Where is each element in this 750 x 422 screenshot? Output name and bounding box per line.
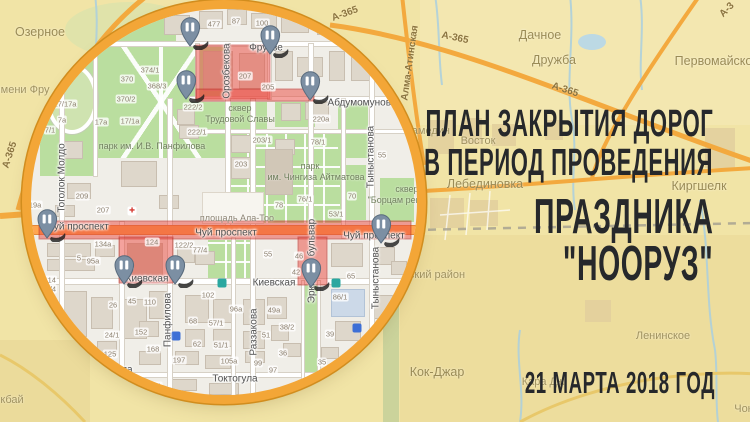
pin-shadow: [314, 282, 329, 291]
building: [392, 262, 406, 274]
house-number: 105а: [220, 357, 239, 366]
area-name-label: площадь Ала-Тоо: [200, 213, 274, 223]
area-name-label: парк им. И.В. Панфилова: [99, 141, 205, 151]
street-name-label: Раззакова: [249, 308, 260, 355]
house-number: 17/17а: [53, 100, 78, 109]
building: [178, 110, 194, 124]
house-number: 125/7: [69, 345, 90, 354]
house-number: 53/1: [328, 210, 345, 219]
closure-location-pin: [34, 208, 68, 247]
area-name-label: парк: [301, 161, 320, 171]
house-number: 370: [120, 75, 135, 84]
house-number: 125: [103, 350, 118, 359]
street-name-label: Токтогула: [212, 374, 257, 385]
street: [94, 44, 97, 176]
district-label: Лебединовка: [447, 177, 523, 191]
area-name-label: сквер: [228, 103, 251, 113]
house-number: 220а: [312, 115, 331, 124]
house-number: 168: [146, 345, 161, 354]
pin-shadow: [313, 95, 328, 104]
house-number: 7а: [57, 116, 67, 125]
poi-icon: [332, 279, 341, 288]
closure-location-pin: [162, 254, 196, 293]
house-number: 134а: [94, 240, 113, 249]
house-number: 152: [134, 328, 149, 337]
district-label: Чон: [734, 403, 750, 415]
house-number: 65: [346, 272, 356, 281]
building: [232, 136, 252, 152]
street: [232, 238, 235, 395]
house-number: 5: [76, 254, 82, 263]
road-closure-zone: [197, 90, 313, 100]
house-number: 24/1: [104, 331, 121, 340]
house-number: 95а: [86, 257, 101, 266]
house-number: 197: [172, 356, 187, 365]
closure-location-pin: [257, 24, 291, 63]
house-number: 55: [263, 250, 273, 259]
house-number: 222/1: [187, 128, 208, 137]
park-area: [208, 240, 252, 280]
district-label: Дачное: [519, 28, 561, 42]
closure-location-pin: [297, 70, 331, 109]
house-number: 49а: [267, 306, 282, 315]
house-number: 51: [261, 331, 271, 340]
district-label: Первомайское: [675, 54, 750, 68]
house-number: 96а: [229, 305, 244, 314]
closure-location-pin: [177, 16, 211, 55]
house-number: 38/2: [279, 323, 296, 332]
poi-icon: [353, 324, 362, 333]
district-label: Дружба: [532, 53, 576, 67]
house-number: 368/3: [147, 82, 168, 91]
street-name-label: Токтогула: [87, 365, 132, 376]
house-number: 57/1: [208, 319, 225, 328]
closure-location-pin: [111, 254, 145, 293]
district-label: кбай: [0, 394, 23, 406]
event-date: 21 МАРТА 2018 ГОД: [525, 367, 715, 398]
building: [122, 162, 156, 186]
house-number: 62: [192, 340, 202, 349]
district-label: Восток: [461, 135, 496, 147]
house-number: 55: [377, 151, 387, 160]
building: [170, 380, 196, 390]
house-number: 51/1: [213, 341, 230, 350]
pin-shadow: [50, 233, 65, 242]
building: [332, 244, 362, 266]
house-number: 102: [201, 291, 216, 300]
pin-shadow: [178, 279, 193, 288]
house-number: 114: [43, 276, 57, 285]
poi-icon: ✚: [128, 207, 137, 216]
house-number: 86/1: [332, 293, 349, 302]
house-number: 112/4: [37, 285, 57, 294]
house-number: 68: [188, 317, 198, 326]
house-number: 97: [268, 366, 278, 375]
city-map: ✚ФрунзеОрозбековаАбдумомуноваТоголок Мол…: [31, 9, 417, 395]
house-number: 26: [108, 301, 118, 310]
house-number: 76/1: [297, 195, 314, 204]
pin-shadow: [273, 49, 288, 58]
pin-shadow: [189, 94, 204, 103]
house-number: 45: [127, 297, 137, 306]
house-number: 99: [253, 359, 263, 368]
building: [392, 300, 404, 316]
building: [390, 80, 406, 92]
pin-shadow: [193, 41, 208, 50]
street-name-label: Тыныстанова: [366, 126, 377, 188]
street-name-label: Панфилова: [163, 293, 174, 347]
area-name-label: "Борцам рев: [368, 195, 417, 205]
street: [302, 281, 304, 395]
park-area: [96, 9, 176, 44]
house-number: 78/1: [310, 138, 327, 147]
closure-location-pin: [368, 213, 402, 252]
closure-location-pin: [173, 69, 207, 108]
house-number: 205: [261, 83, 276, 92]
area-name-label: Трудовой Славы: [205, 114, 275, 124]
district-label: Кок-Джар: [410, 365, 465, 379]
district-label: Киргшелк: [671, 179, 726, 193]
house-number: 164/1: [142, 382, 163, 391]
street: [318, 281, 320, 395]
street-name-label: Орозбекова: [222, 43, 233, 98]
house-number: 39: [325, 330, 335, 339]
house-number: 7/1: [44, 126, 56, 135]
district-label: ский район: [409, 269, 465, 281]
road-closure-poster: Озерноеимени ФруДачноеДружбаПервомайское…: [0, 0, 750, 422]
building: [318, 10, 338, 34]
house-number: 207: [238, 72, 253, 81]
building: [384, 52, 400, 70]
house-number: 36: [278, 349, 288, 358]
closure-location-pin: [298, 257, 332, 296]
house-number: 209: [75, 192, 90, 201]
street: [370, 20, 374, 395]
house-number: 203/1: [252, 136, 273, 145]
house-number: 124: [145, 238, 160, 247]
area-name-label: им. Чингиза Айтматова: [267, 172, 364, 182]
pin-shadow: [384, 238, 399, 247]
house-number: 17/1а: [120, 117, 141, 126]
street-name-label: Абдумомунова: [328, 98, 397, 109]
building: [330, 52, 344, 80]
building: [386, 26, 404, 40]
house-number: 78: [274, 201, 284, 210]
pin-shadow: [127, 279, 142, 288]
house-number: 17а: [94, 118, 109, 127]
street-name-label: Тоголок Молдо: [57, 143, 68, 212]
poi-icon: [218, 279, 227, 288]
building: [140, 352, 160, 364]
street-name-label: Тыныстанова: [371, 247, 382, 309]
street-name-label: Киевская: [253, 278, 296, 289]
house-number: 374/1: [140, 66, 161, 75]
street-name-label: Чуй проспект: [195, 228, 257, 239]
house-number: 70: [347, 192, 357, 201]
district-label: Ленинское: [636, 330, 690, 342]
building: [322, 348, 338, 358]
area-name-label: сквер: [395, 184, 417, 194]
house-number: 87: [231, 17, 241, 26]
house-number: 110: [143, 298, 157, 307]
house-number: 207: [96, 206, 111, 215]
city-map-circle: ✚ФрунзеОрозбековаАбдумомуноваТоголок Мол…: [31, 9, 417, 395]
house-number: 370/2: [116, 95, 137, 104]
building: [352, 16, 378, 34]
house-number: 35: [317, 358, 327, 367]
house-number: 203: [234, 160, 249, 169]
